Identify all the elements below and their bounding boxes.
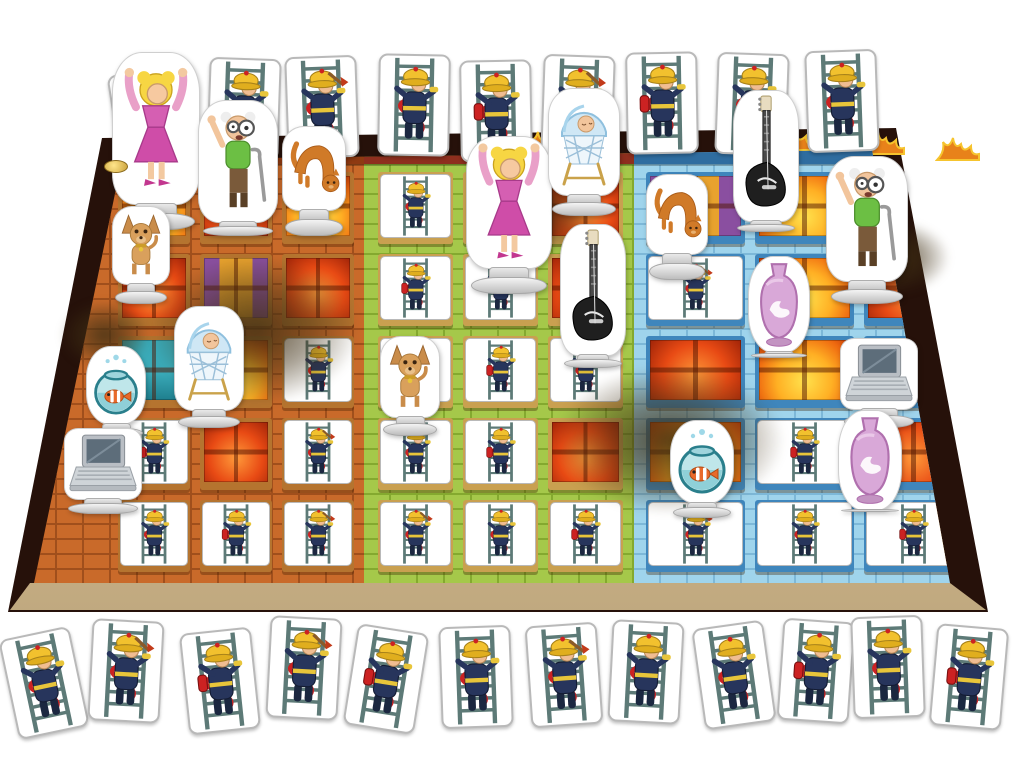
- grandpa-artwork: [826, 156, 908, 282]
- electric-guitar-standee[interactable]: [733, 90, 799, 232]
- fishbowl-standee[interactable]: [670, 420, 734, 518]
- blonde-woman-standee[interactable]: [112, 52, 200, 230]
- grandpa-artwork: [198, 100, 278, 223]
- standee-base: [178, 416, 240, 428]
- standee-base: [471, 277, 547, 294]
- vase-standee[interactable]: [838, 410, 902, 512]
- baby-bassinet-standee[interactable]: [548, 88, 620, 216]
- firefighter-ladder-card-bottom-row[interactable]: [179, 627, 261, 736]
- firefighter-ladder-card[interactable]: [202, 502, 270, 566]
- burning-window: [200, 418, 272, 490]
- vase-artwork: [838, 410, 902, 511]
- laptop-artwork: [840, 338, 918, 410]
- vase-standee[interactable]: [748, 256, 810, 358]
- firefighter-ladder-card-top-row[interactable]: [377, 53, 451, 156]
- window-with-rescue-card: [463, 336, 538, 408]
- standee-base: [203, 226, 274, 236]
- fishbowl-standee[interactable]: [86, 346, 146, 438]
- cat-artwork: [282, 126, 346, 211]
- cat-standee[interactable]: [646, 174, 708, 280]
- firefighter-ladder-card-top-row[interactable]: [804, 49, 880, 153]
- window-with-rescue-card: [378, 500, 453, 572]
- gold-coin-decoration: [104, 160, 128, 173]
- fishbowl-artwork: [86, 346, 146, 425]
- game-photo: [0, 0, 1024, 768]
- window-with-rescue-card: [548, 500, 623, 572]
- dog-artwork: [380, 336, 440, 418]
- cat-artwork: [646, 174, 708, 255]
- firefighter-ladder-card-bottom-row[interactable]: [265, 615, 342, 721]
- standee-base: [751, 353, 806, 358]
- firefighter-ladder-card[interactable]: [284, 420, 352, 484]
- window-with-rescue-card: [378, 172, 453, 244]
- firefighter-ladder-card[interactable]: [550, 502, 621, 566]
- firefighter-ladder-card-bottom-row[interactable]: [929, 623, 1010, 731]
- woman-artwork: [466, 136, 552, 269]
- grandpa-standee[interactable]: [198, 100, 278, 236]
- firefighter-ladder-card[interactable]: [380, 502, 451, 566]
- laptop-standee[interactable]: [64, 428, 142, 514]
- fishbowl-artwork: [670, 420, 734, 504]
- standee-base: [564, 359, 623, 368]
- standee-base: [831, 289, 904, 304]
- cat-standee[interactable]: [282, 126, 346, 236]
- standee-base: [737, 224, 796, 232]
- firefighter-ladder-card-bottom-row[interactable]: [607, 619, 684, 725]
- standee-base: [285, 219, 342, 236]
- firefighter-ladder-card-bottom-row[interactable]: [438, 625, 514, 729]
- electric-guitar-standee[interactable]: [560, 224, 626, 368]
- firefighter-ladder-card[interactable]: [284, 502, 352, 566]
- dog-artwork: [112, 206, 170, 285]
- blonde-woman-standee[interactable]: [466, 136, 552, 294]
- standee-base: [383, 423, 437, 436]
- standee-base: [673, 507, 730, 518]
- firefighter-ladder-card-bottom-row[interactable]: [850, 615, 926, 719]
- firefighter-ladder-card[interactable]: [465, 502, 536, 566]
- standee-base: [552, 202, 616, 216]
- firefighter-ladder-card-bottom-row[interactable]: [87, 618, 164, 724]
- window-with-rescue-card: [463, 500, 538, 572]
- grandpa-standee[interactable]: [826, 156, 908, 304]
- firefighter-ladder-card-top-row[interactable]: [625, 51, 699, 154]
- guitar-artwork: [560, 224, 626, 356]
- standee-base: [649, 263, 704, 280]
- firefighter-ladder-card-bottom-row[interactable]: [777, 618, 856, 725]
- firefighter-ladder-card-bottom-row[interactable]: [525, 622, 604, 729]
- dog-standee[interactable]: [112, 206, 170, 304]
- laptop-artwork: [64, 428, 142, 500]
- firefighter-ladder-card[interactable]: [465, 420, 536, 484]
- firefighter-ladder-card-bottom-row[interactable]: [342, 623, 429, 735]
- bassinet-artwork: [174, 306, 244, 411]
- firefighter-ladder-card[interactable]: [465, 338, 536, 402]
- firefighter-ladder-card[interactable]: [380, 256, 451, 320]
- flame-icon: [935, 132, 981, 162]
- guitar-artwork: [733, 90, 799, 222]
- window-with-rescue-card: [200, 500, 272, 572]
- window-with-rescue-card: [282, 418, 354, 490]
- vase-artwork: [748, 256, 810, 353]
- firefighter-ladder-card-bottom-row[interactable]: [0, 626, 90, 741]
- standee-base: [68, 503, 137, 514]
- firefighter-ladder-card-bottom-row[interactable]: [691, 619, 776, 730]
- firefighter-ladder-card[interactable]: [380, 174, 451, 238]
- window-with-rescue-card: [378, 254, 453, 326]
- bassinet-artwork: [548, 88, 620, 196]
- standee-base: [841, 509, 898, 512]
- standee-base: [115, 291, 167, 304]
- woman-artwork: [112, 52, 200, 205]
- baby-bassinet-standee[interactable]: [174, 306, 244, 428]
- window-with-rescue-card: [282, 500, 354, 572]
- window-with-rescue-card: [463, 418, 538, 490]
- dog-standee[interactable]: [380, 336, 440, 436]
